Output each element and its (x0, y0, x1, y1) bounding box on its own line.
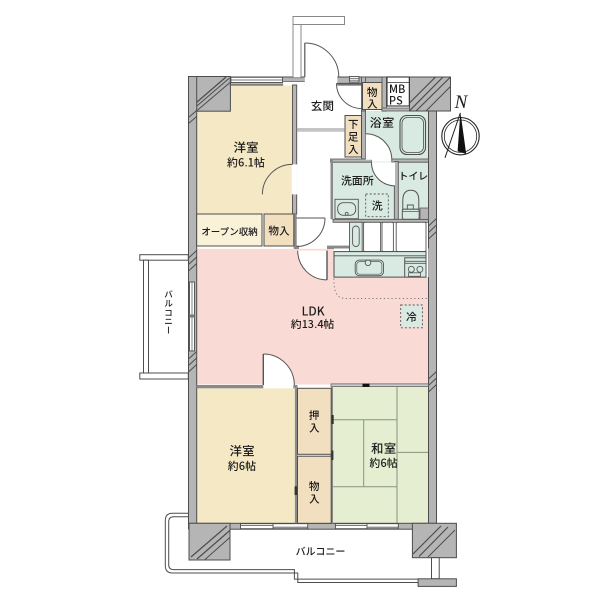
svg-text:バルコニー: バルコニー (162, 289, 175, 335)
svg-text:バルコニー: バルコニー (296, 543, 346, 558)
svg-text:入: 入 (309, 492, 320, 507)
svg-text:約6帖: 約6帖 (228, 458, 256, 474)
svg-text:玄関: 玄関 (311, 98, 334, 114)
svg-text:物入: 物入 (269, 224, 290, 239)
svg-text:入: 入 (348, 142, 359, 157)
svg-text:洋室: 洋室 (233, 137, 258, 156)
svg-text:オープン収納: オープン収納 (201, 224, 258, 238)
svg-text:約6.1帖: 約6.1帖 (227, 155, 265, 171)
svg-text:洗面所: 洗面所 (341, 173, 375, 189)
svg-text:PS: PS (389, 92, 403, 108)
svg-text:トイレ: トイレ (398, 168, 428, 183)
svg-text:約13.4帖: 約13.4帖 (291, 316, 334, 332)
svg-text:入: 入 (309, 421, 320, 436)
svg-text:N: N (454, 92, 469, 113)
svg-text:洋室: 洋室 (229, 441, 254, 460)
svg-text:洗: 洗 (372, 198, 383, 214)
svg-text:入: 入 (367, 97, 378, 112)
svg-text:冷: 冷 (406, 309, 418, 325)
svg-text:浴室: 浴室 (370, 114, 394, 131)
svg-text:約6帖: 約6帖 (369, 455, 397, 471)
